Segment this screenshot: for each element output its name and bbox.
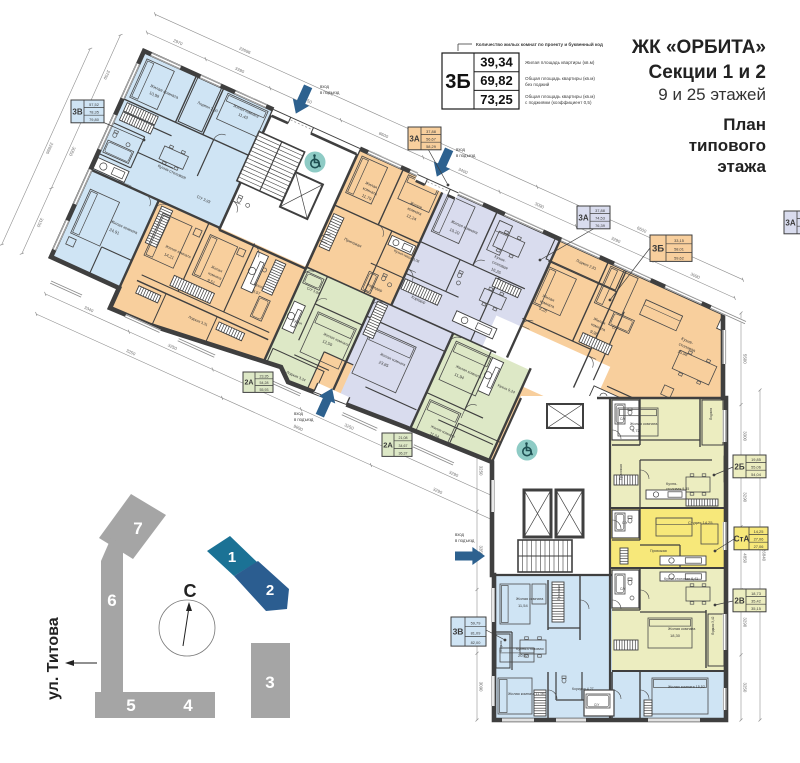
svg-text:81,09: 81,09 xyxy=(471,630,481,635)
svg-text:столовая 9,35: столовая 9,35 xyxy=(666,487,689,491)
svg-text:26840: 26840 xyxy=(762,549,767,562)
svg-text:3: 3 xyxy=(265,673,274,692)
svg-text:79,80: 79,80 xyxy=(89,117,100,122)
svg-text:76,39: 76,39 xyxy=(595,223,605,228)
svg-text:5: 5 xyxy=(126,696,135,715)
svg-text:55,93: 55,93 xyxy=(260,388,269,392)
svg-text:5500: 5500 xyxy=(743,354,748,364)
svg-text:6: 6 xyxy=(107,591,116,610)
svg-text:2А: 2А xyxy=(245,380,254,387)
svg-text:Студия 14,25: Студия 14,25 xyxy=(688,520,713,525)
svg-text:55,06: 55,06 xyxy=(751,465,761,470)
svg-text:Жилая комната: Жилая комната xyxy=(668,627,696,631)
svg-text:3250: 3250 xyxy=(743,683,748,693)
svg-text:39,34: 39,34 xyxy=(480,55,513,70)
svg-text:План: План xyxy=(723,115,766,134)
svg-text:73,25: 73,25 xyxy=(480,92,513,107)
svg-text:18,30: 18,30 xyxy=(670,633,681,638)
svg-text:С/У: С/У xyxy=(620,587,626,591)
svg-text:36,37: 36,37 xyxy=(399,452,408,456)
svg-text:4: 4 xyxy=(183,696,193,715)
svg-text:33,15: 33,15 xyxy=(674,238,684,243)
svg-text:Жилая площадь квартиры (кв.м): Жилая площадь квартиры (кв.м) xyxy=(525,60,595,65)
svg-text:58,29: 58,29 xyxy=(426,144,436,149)
svg-text:35,15: 35,15 xyxy=(751,606,761,611)
svg-text:С/У: С/У xyxy=(620,417,626,421)
svg-text:ЖК «ОРБИТА»: ЖК «ОРБИТА» xyxy=(631,37,766,58)
svg-text:14,25: 14,25 xyxy=(754,529,764,534)
svg-text:69,82: 69,82 xyxy=(480,73,513,88)
svg-text:Лоджия 3,42: Лоджия 3,42 xyxy=(711,616,715,635)
svg-text:23,35: 23,35 xyxy=(260,374,269,378)
svg-text:37,88: 37,88 xyxy=(595,208,605,213)
svg-text:Жилая комната 15,52: Жилая комната 15,52 xyxy=(668,685,705,689)
svg-text:типового: типового xyxy=(689,136,766,155)
svg-text:18,73: 18,73 xyxy=(751,591,761,596)
svg-text:Кухня-столовая: Кухня-столовая xyxy=(516,647,544,651)
svg-text:1: 1 xyxy=(228,549,236,566)
svg-text:19,85: 19,85 xyxy=(751,457,761,462)
svg-text:74,53: 74,53 xyxy=(595,216,605,221)
svg-text:Прихожая: Прихожая xyxy=(557,584,561,600)
svg-text:54,04: 54,04 xyxy=(751,472,762,477)
svg-text:вход: вход xyxy=(320,84,330,89)
svg-text:Количество жилых комнат по про: Количество жилых комнат по проекту и бук… xyxy=(476,41,603,47)
svg-text:вход: вход xyxy=(456,147,466,152)
svg-text:ул. Титова: ул. Титова xyxy=(45,617,62,700)
svg-text:2А: 2А xyxy=(383,440,393,449)
svg-text:21,08: 21,08 xyxy=(399,436,408,440)
svg-text:этажа: этажа xyxy=(717,157,766,176)
svg-text:Кухня-: Кухня- xyxy=(666,482,678,486)
svg-text:Лоджия: Лоджия xyxy=(709,408,713,420)
svg-text:вход: вход xyxy=(455,532,465,537)
svg-text:С/У: С/У xyxy=(622,521,628,525)
svg-text:Общая площадь квартиры (кв.м): Общая площадь квартиры (кв.м) xyxy=(525,94,595,99)
svg-text:58,01: 58,01 xyxy=(674,247,684,252)
svg-text:20,07: 20,07 xyxy=(518,653,529,658)
svg-text:Коридор 4,27: Коридор 4,27 xyxy=(572,687,594,691)
svg-text:С: С xyxy=(184,581,197,601)
svg-text:27,06: 27,06 xyxy=(754,537,764,542)
svg-text:27,06: 27,06 xyxy=(754,544,764,549)
svg-text:3Б: 3Б xyxy=(652,244,664,255)
svg-text:54,28: 54,28 xyxy=(260,381,269,385)
svg-text:Жилая комната: Жилая комната xyxy=(516,597,544,601)
svg-text:37,88: 37,88 xyxy=(426,129,436,134)
svg-text:59,79: 59,79 xyxy=(471,621,481,626)
svg-text:Секции 1 и 2: Секции 1 и 2 xyxy=(649,62,767,83)
svg-text:СтА: СтА xyxy=(734,534,750,543)
svg-text:11,54: 11,54 xyxy=(518,603,528,608)
svg-text:35,42: 35,42 xyxy=(751,599,761,604)
svg-text:3290: 3290 xyxy=(743,492,748,502)
svg-text:3300: 3300 xyxy=(743,431,748,441)
svg-text:3А: 3А xyxy=(785,218,795,227)
svg-text:7: 7 xyxy=(133,519,142,538)
svg-text:3А: 3А xyxy=(409,134,419,143)
svg-text:59,62: 59,62 xyxy=(674,256,684,261)
svg-text:Прихожая: Прихожая xyxy=(619,464,623,480)
svg-text:Общая площадь квартиры (кв.м): Общая площадь квартиры (кв.м) xyxy=(525,76,595,81)
svg-text:3290: 3290 xyxy=(743,617,748,627)
svg-text:9,72: 9,72 xyxy=(632,428,641,433)
svg-text:вход: вход xyxy=(294,411,304,416)
svg-text:34,67: 34,67 xyxy=(399,444,408,448)
svg-text:3Б: 3Б xyxy=(445,71,471,93)
svg-text:Жилая комната 11,95: Жилая комната 11,95 xyxy=(508,692,545,696)
svg-text:56,67: 56,67 xyxy=(426,137,436,142)
svg-text:3В: 3В xyxy=(453,627,464,637)
svg-text:с поджиями (коэффициент 0,5): с поджиями (коэффициент 0,5) xyxy=(525,100,592,105)
svg-text:9 и 25 этажей: 9 и 25 этажей xyxy=(658,85,766,104)
svg-text:Кухня-столовая 6,41: Кухня-столовая 6,41 xyxy=(664,577,698,581)
svg-text:в подъезд: в подъезд xyxy=(320,90,340,95)
svg-text:4850: 4850 xyxy=(743,553,748,563)
svg-text:78,35: 78,35 xyxy=(89,110,99,115)
svg-text:82,00: 82,00 xyxy=(471,640,482,645)
svg-text:без поджий: без поджий xyxy=(525,81,550,87)
svg-text:3250: 3250 xyxy=(479,466,484,476)
svg-text:в подъезд: в подъезд xyxy=(456,153,476,158)
svg-text:3А: 3А xyxy=(578,213,588,222)
svg-text:3В: 3В xyxy=(72,107,82,116)
svg-text:2В: 2В xyxy=(734,596,744,605)
svg-text:3090: 3090 xyxy=(479,682,484,692)
svg-text:в подъезд: в подъезд xyxy=(294,417,314,422)
svg-text:2Б: 2Б xyxy=(734,462,744,471)
svg-text:Прихожая: Прихожая xyxy=(650,549,667,553)
svg-text:в подъезд: в подъезд xyxy=(455,538,475,543)
svg-text:57,52: 57,52 xyxy=(89,102,99,107)
svg-text:Жилая комната: Жилая комната xyxy=(630,422,658,426)
svg-text:Лоджия: Лоджия xyxy=(499,640,503,652)
svg-text:2: 2 xyxy=(266,582,274,599)
